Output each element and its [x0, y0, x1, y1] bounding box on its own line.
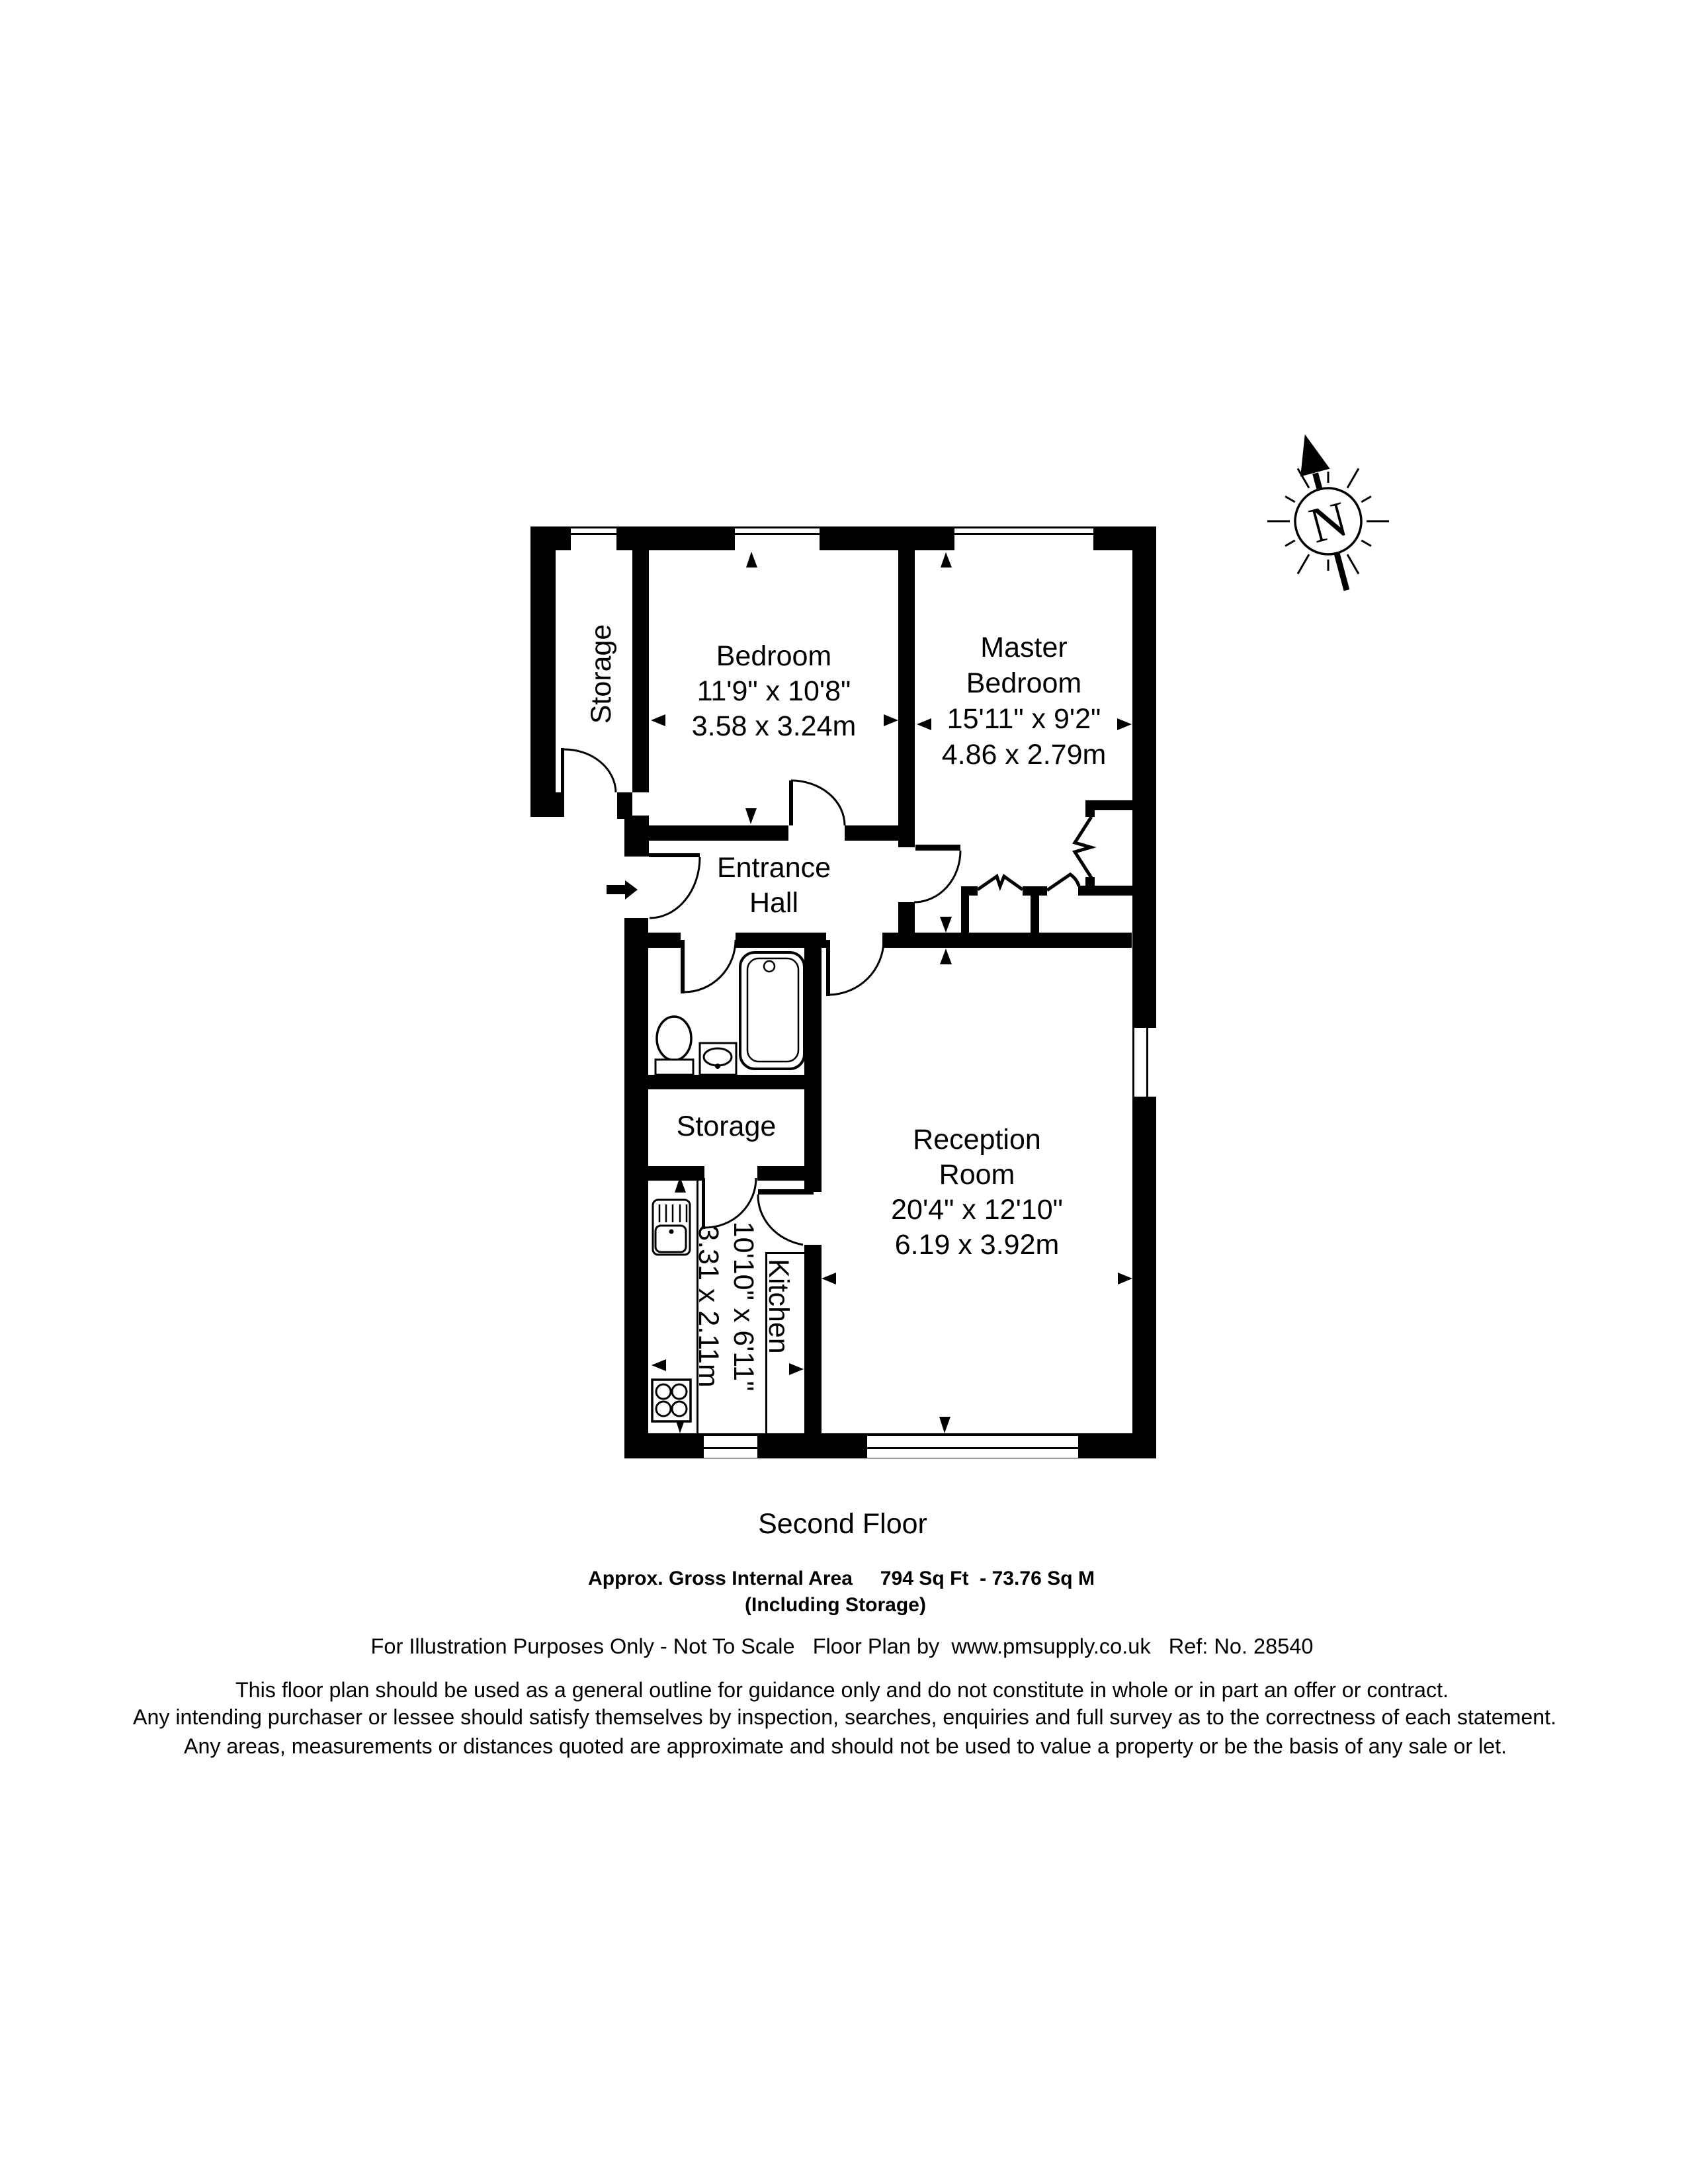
- svg-text:For Illustration Purposes Only: For Illustration Purposes Only - Not To …: [371, 1634, 1314, 1658]
- svg-text:Reception: Reception: [913, 1124, 1041, 1155]
- svg-text:This floor plan should be used: This floor plan should be used as a gene…: [235, 1678, 1449, 1702]
- svg-text:Bedroom: Bedroom: [966, 667, 1081, 699]
- svg-text:Any areas, measurements or dis: Any areas, measurements or distances quo…: [184, 1734, 1507, 1758]
- svg-text:Storage: Storage: [585, 624, 617, 724]
- svg-text:Bedroom: Bedroom: [716, 640, 831, 672]
- svg-text:4.86 x 2.79m: 4.86 x 2.79m: [942, 739, 1107, 771]
- svg-text:Hall: Hall: [749, 887, 798, 919]
- svg-text:Room: Room: [939, 1159, 1015, 1191]
- svg-text:3.58 x 3.24m: 3.58 x 3.24m: [692, 710, 857, 742]
- svg-text:11'9" x 10'8": 11'9" x 10'8": [697, 675, 851, 707]
- svg-text:Master: Master: [980, 632, 1067, 663]
- svg-text:Entrance: Entrance: [717, 852, 831, 884]
- svg-text:Any intending purchaser or les: Any intending purchaser or lessee should…: [133, 1705, 1556, 1729]
- svg-text:Approx. Gross Internal Area: Approx. Gross Internal Area 794 Sq Ft - …: [588, 1568, 1095, 1589]
- svg-text:6.19 x 3.92m: 6.19 x 3.92m: [895, 1229, 1060, 1261]
- svg-text:Second Floor: Second Floor: [758, 1508, 927, 1540]
- svg-text:Storage: Storage: [677, 1111, 777, 1142]
- svg-text:20'4" x 12'10": 20'4" x 12'10": [891, 1194, 1063, 1226]
- svg-text:(Including Storage): (Including Storage): [745, 1594, 926, 1616]
- svg-text:15'11" x 9'2": 15'11" x 9'2": [947, 703, 1101, 735]
